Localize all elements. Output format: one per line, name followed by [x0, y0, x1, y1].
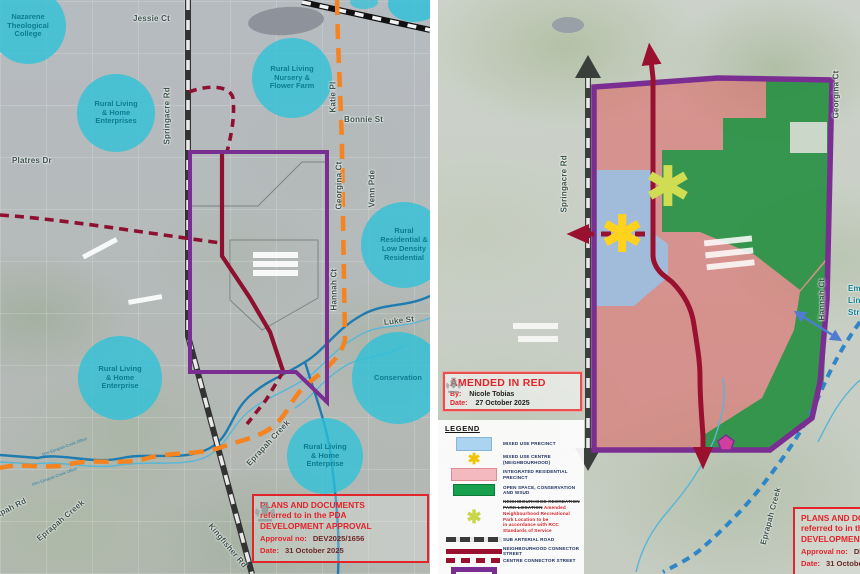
stamp-approval-value: DEV2025/1656	[854, 547, 860, 556]
map-figure: Nazarene Theological College Rural Livin…	[0, 0, 860, 574]
yellowgreen-asterisk-icon: ✱	[466, 511, 481, 523]
zone-label: Enterprise	[306, 460, 343, 469]
zone-label: Enterprise	[101, 382, 138, 391]
zone-circle-nursery-flower-farm: Rural Living Nursery & Flower Farm	[252, 38, 332, 118]
neighbourhood-park-asterisk: ✱	[645, 155, 692, 220]
zone-circle-rural-living-south: Rural Living & Home Enterprise	[78, 336, 162, 420]
legend-item-mixed-use: MIXED USE PRECINCT	[445, 437, 580, 451]
street-label-katie-pl: Katie Pl	[329, 82, 338, 113]
stamp-date-label: Date:	[260, 546, 279, 555]
stamp-approval-label: Approval no:	[801, 547, 848, 556]
centre-connector-swatch	[446, 558, 502, 563]
precinct-boundary-swatch	[451, 567, 497, 574]
stamp-title-line: PLANS AND DOCUMENTS	[260, 500, 422, 510]
zone-label: Enterprises	[95, 117, 136, 126]
stamp-title-line: DEVELOPMENT APPROVAL	[260, 521, 422, 531]
stamp-date-label: Date:	[801, 559, 820, 568]
park-note-line: Neighbourhood Recreational Park Location…	[503, 511, 570, 522]
left-map-panel: Nazarene Theological College Rural Livin…	[0, 0, 430, 574]
legend-item-open-space: OPEN SPACE, CONSERVATION AND WSUD	[445, 484, 580, 496]
legend-panel: LEGEND MIXED USE PRECINCT ✱ MIXED USE CE…	[438, 420, 584, 574]
mixed-use-centre-asterisk: ✱	[600, 205, 644, 265]
stamp-date-value: 31 October 2025	[285, 546, 344, 555]
pond-shape	[552, 17, 584, 33]
street-label-hannah-ct: Hannah Ct	[330, 269, 339, 311]
amended-date-value: 27 October 2025	[476, 400, 530, 407]
street-label-platres-dr: Platres Dr	[12, 156, 52, 165]
pond-shape	[247, 4, 325, 37]
legend-item-residential: INTEGRATED RESIDENTIAL PRECINCT	[445, 468, 580, 481]
street-label-georgina-ct: Georgina Ct	[335, 162, 344, 210]
excluded-lot-notch	[790, 122, 827, 153]
zoning-fragment	[350, 0, 378, 9]
pda-approval-stamp: PLANS AND DOCUMENTS referred to in the P…	[252, 494, 429, 563]
legend-item-sub-arterial: SUB ARTERIAL ROAD	[445, 537, 580, 543]
stamp-approval-value: DEV2025/1656	[313, 534, 365, 543]
mixed-use-swatch	[456, 437, 492, 451]
street-label-fragment: Str	[848, 308, 860, 317]
street-label-jessie-ct: Jessie Ct	[133, 14, 170, 23]
neighbourhood-connector-swatch	[446, 549, 502, 554]
stamp-title-line: referred to in the PDA	[801, 523, 860, 533]
legend-item-mixed-use-centre: ✱ MIXED USE CENTRE (NEIGHBOURHOOD)	[445, 454, 580, 465]
zone-label: Conservation	[374, 374, 422, 383]
pda-approval-stamp: PLANS AND DOCUMENTS referred to in the P…	[793, 507, 860, 574]
street-label-springacre-rd: Springacre Rd	[163, 87, 172, 144]
zone-label: College	[14, 30, 41, 39]
street-label-springacre-rd: Springacre Rd	[560, 155, 569, 212]
legend-title: LEGEND	[445, 424, 580, 433]
amended-date-label: Date:	[450, 400, 468, 407]
park-label-amended: Amended	[544, 505, 566, 510]
legend-item-centre-connector: CENTRE CONNECTOR STREET	[445, 558, 580, 564]
gold-asterisk-icon: ✱	[468, 455, 481, 465]
open-space-swatch	[453, 484, 495, 496]
street-label-venn-pde: Venn Pde	[368, 170, 377, 208]
right-map-panel: ✱ ✱ Springacre Rd Georgina Ct Hannah Ct …	[438, 0, 860, 574]
queensland-crest-icon	[445, 376, 462, 395]
street-label-hannah-ct: Hannah Ct	[818, 279, 827, 321]
sub-arterial-swatch	[446, 537, 502, 542]
street-label-georgina-ct: Georgina Ct	[832, 71, 841, 119]
residential-swatch	[451, 468, 497, 481]
amended-title: AMENDED IN RED	[450, 377, 576, 389]
stamp-approval-label: Approval no:	[260, 534, 307, 543]
legend-item-neighbourhood-connector: NEIGHBOURHOOD CONNECTOR STREET	[445, 546, 580, 557]
street-label-fragment: Lin	[848, 296, 860, 305]
park-note-line: in accordance with RCC Standards of Serv…	[503, 522, 559, 533]
amended-by-value: Nicole Tobias	[469, 391, 514, 398]
zone-label: Residential	[384, 254, 424, 263]
park-label-struck: NEIGHBOURHOOD RECREATION PARK LOCATION	[503, 499, 580, 510]
amended-in-red-box: AMENDED IN RED By: Nicole Tobias Date: 2…	[443, 372, 582, 411]
stamp-title-line: DEVELOPMENT APPROVAL	[801, 534, 860, 544]
street-label-fragment: Em	[848, 284, 860, 293]
stamp-title-line: PLANS AND DOCUMENTS	[801, 513, 860, 523]
zoning-fragment	[388, 0, 430, 22]
legend-item-neighbourhood-park: ✱ NEIGHBOURHOOD RECREATION PARK LOCATION…	[445, 499, 580, 533]
zone-circle-rural-living: Rural Living & Home Enterprises	[77, 74, 155, 152]
queensland-crest-icon	[254, 500, 276, 524]
lot-boundary-lines	[192, 162, 327, 330]
left-map-overlay-graphics	[0, 0, 430, 574]
building-footprints	[513, 323, 558, 342]
stamp-date-value: 31 October 2025	[826, 559, 860, 568]
building-footprints	[704, 235, 755, 270]
zone-label: Flower Farm	[270, 82, 315, 91]
zone-circle-rural-living-southeast: Rural Living & Home Enterprise	[287, 418, 363, 494]
legend-item-precinct-boundary: PRECINCT BOUNDARY	[445, 567, 580, 574]
street-label-bonnie-st: Bonnie St	[344, 115, 383, 124]
stamp-title-line: referred to in the PDA	[260, 510, 422, 520]
